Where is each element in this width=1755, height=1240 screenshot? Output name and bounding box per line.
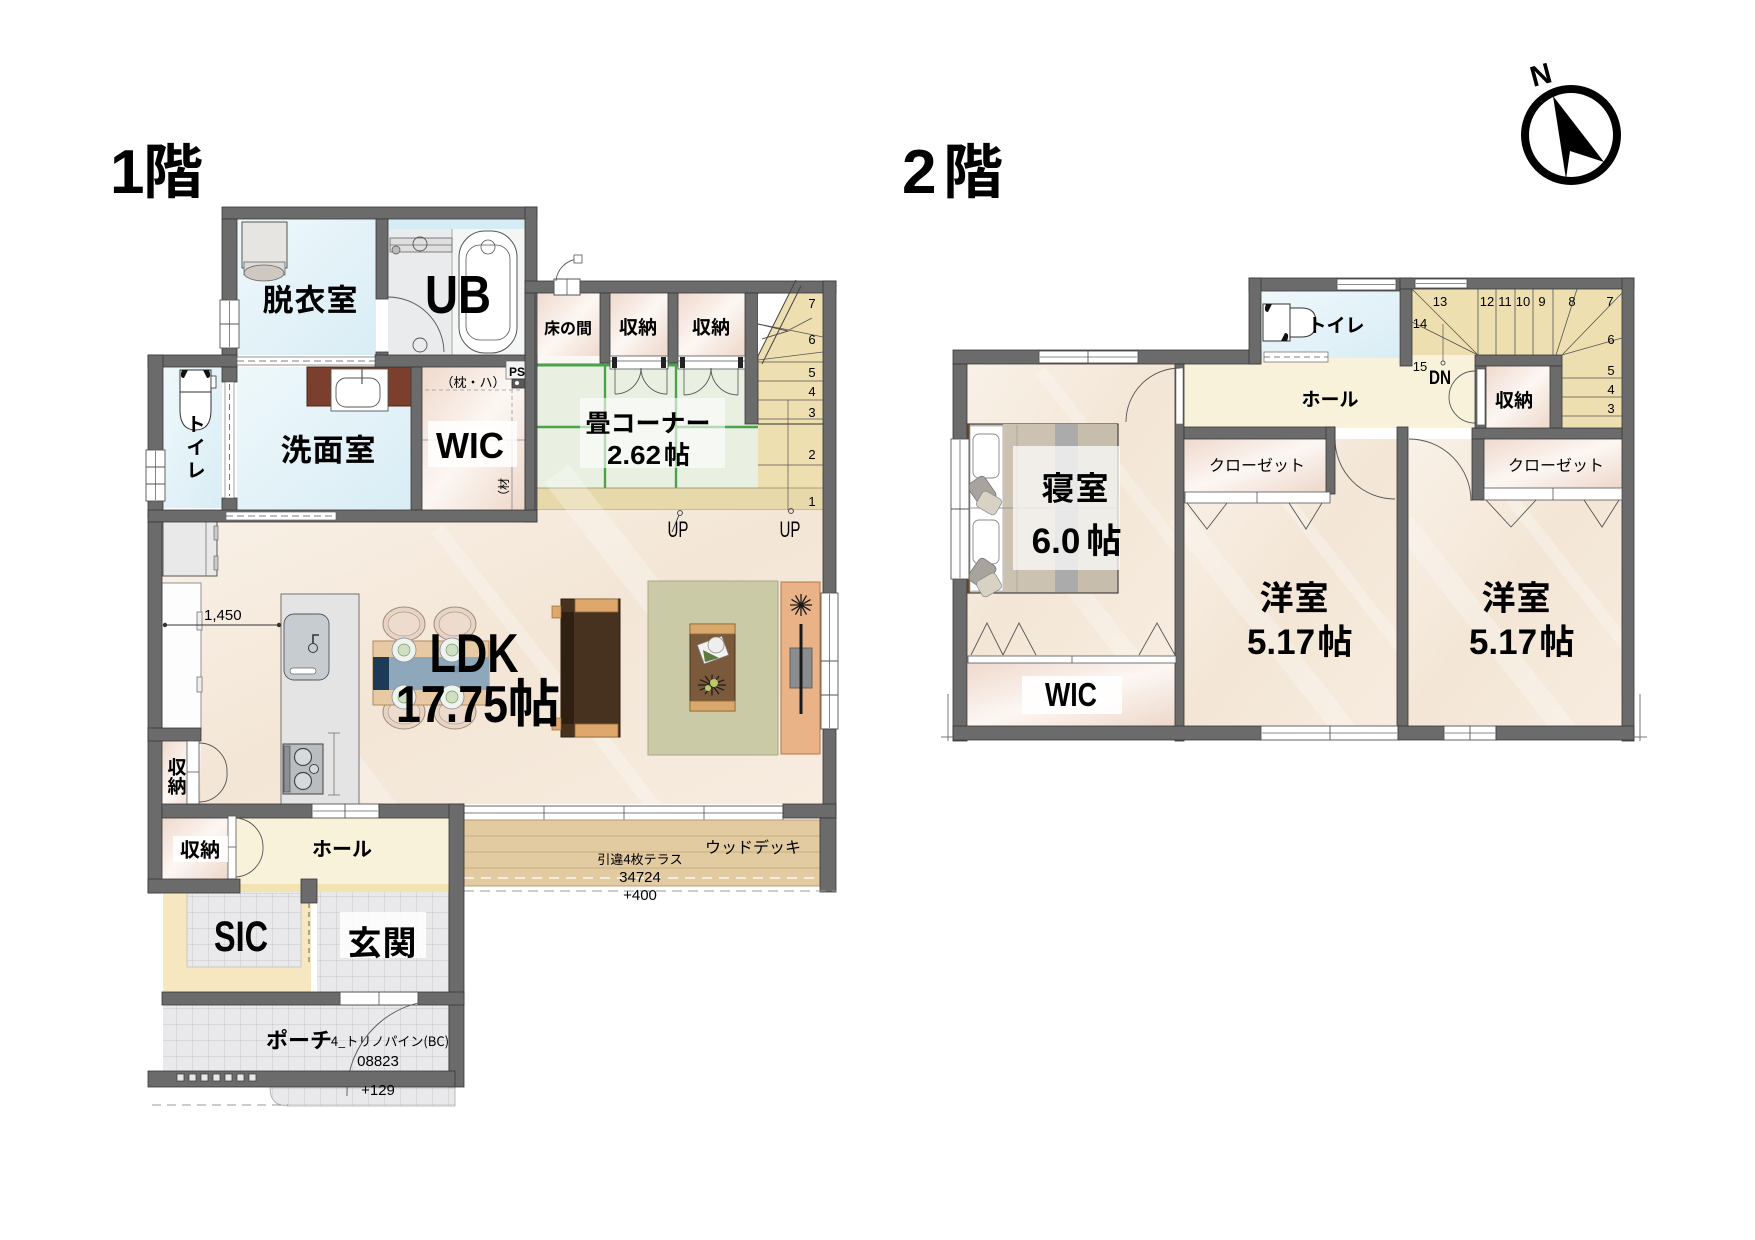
svg-text:SIC: SIC — [214, 913, 268, 961]
svg-text:9: 9 — [1538, 294, 1545, 309]
svg-text:17.75: 17.75 — [396, 676, 508, 734]
svg-text:10: 10 — [1516, 294, 1530, 309]
svg-text:7: 7 — [808, 296, 815, 311]
svg-text:08823: 08823 — [357, 1053, 399, 1070]
svg-text:6: 6 — [808, 332, 815, 347]
svg-text:4: 4 — [1607, 382, 1614, 397]
svg-text:2.62: 2.62 — [607, 440, 661, 470]
svg-text:5: 5 — [808, 365, 815, 380]
svg-text:5.17: 5.17 — [1247, 623, 1315, 662]
svg-text:WIC: WIC — [436, 425, 504, 466]
svg-text:7: 7 — [1606, 294, 1613, 309]
svg-text:3: 3 — [1607, 401, 1614, 416]
svg-text:1: 1 — [808, 494, 815, 509]
svg-text:6.0: 6.0 — [1032, 522, 1081, 561]
svg-text:6: 6 — [1607, 332, 1614, 347]
svg-text:UB: UB — [425, 265, 491, 325]
svg-text:2: 2 — [808, 447, 815, 462]
svg-text:11: 11 — [1498, 294, 1512, 309]
svg-text:1,450: 1,450 — [204, 607, 242, 624]
svg-text:DN: DN — [1429, 368, 1451, 389]
svg-text:UP: UP — [668, 517, 689, 542]
svg-text:1: 1 — [110, 138, 144, 207]
svg-text:12: 12 — [1480, 294, 1494, 309]
svg-text:8: 8 — [1568, 294, 1575, 309]
svg-text:LDK: LDK — [430, 622, 519, 684]
svg-text:14: 14 — [1413, 316, 1427, 331]
svg-text:5: 5 — [1607, 363, 1614, 378]
svg-text:PS: PS — [509, 365, 525, 379]
svg-text:UP: UP — [780, 517, 801, 542]
svg-text:5.17: 5.17 — [1469, 623, 1537, 662]
svg-text:15: 15 — [1413, 359, 1427, 374]
svg-text:13: 13 — [1433, 294, 1447, 309]
svg-text:+400: +400 — [623, 887, 657, 904]
svg-text:34724: 34724 — [619, 869, 661, 886]
svg-text:WIC: WIC — [1045, 676, 1097, 713]
svg-text:2: 2 — [902, 138, 936, 207]
svg-text:3: 3 — [808, 405, 815, 420]
svg-text:4: 4 — [808, 384, 815, 399]
svg-text:+129: +129 — [361, 1082, 395, 1099]
